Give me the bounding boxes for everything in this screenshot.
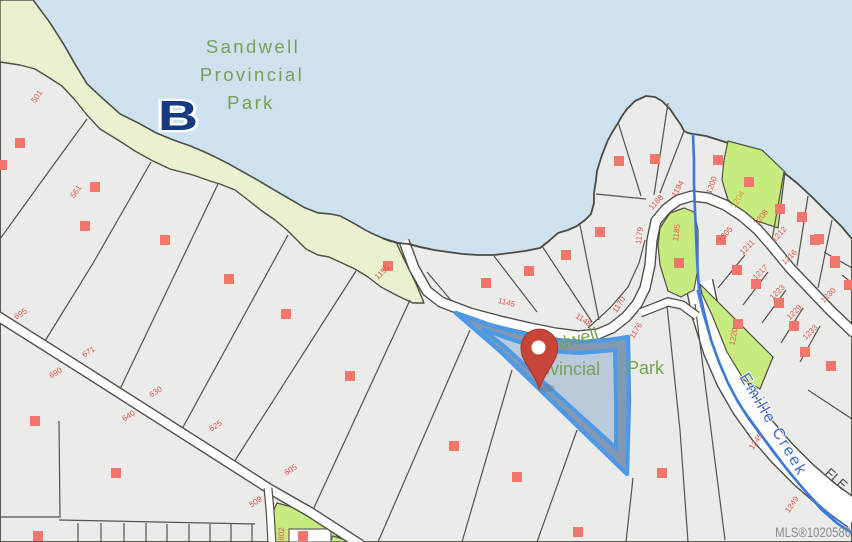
svg-text:Park: Park (627, 358, 665, 378)
svg-text:Sandwell: Sandwell (206, 36, 300, 57)
svg-text:802: 802 (277, 527, 286, 541)
svg-text:Park: Park (227, 92, 275, 113)
svg-text:Provincial: Provincial (200, 64, 304, 85)
svg-text:MLS®1020586: MLS®1020586 (775, 524, 851, 541)
svg-text:B: B (158, 92, 198, 139)
